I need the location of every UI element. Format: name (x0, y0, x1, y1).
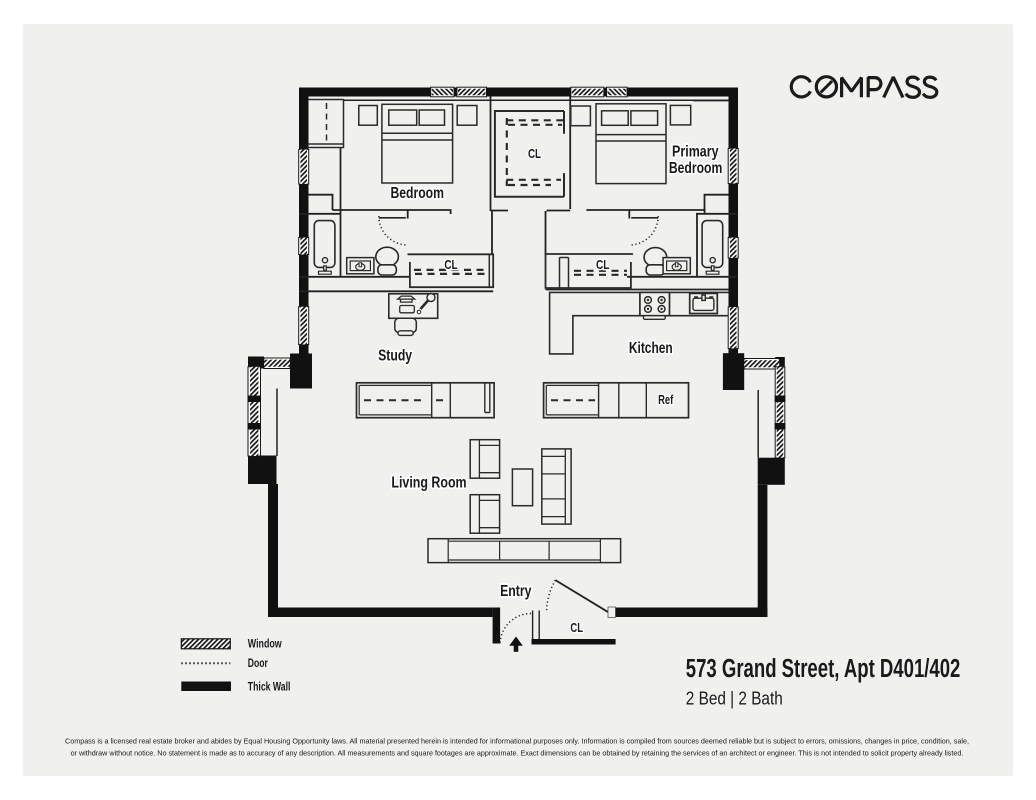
svg-text:Bedroom: Bedroom (669, 158, 722, 176)
svg-text:Ref: Ref (658, 394, 673, 408)
svg-text:CL: CL (528, 148, 541, 161)
svg-text:CL: CL (570, 622, 583, 636)
svg-text:Entry: Entry (500, 582, 532, 600)
svg-text:CL: CL (444, 259, 457, 272)
svg-text:Door: Door (248, 658, 268, 671)
svg-text:Thick Wall: Thick Wall (248, 682, 291, 695)
svg-text:2 Bed | 2 Bath: 2 Bed | 2 Bath (686, 688, 783, 709)
svg-text:573 Grand Street, Apt D401/402: 573 Grand Street, Apt D401/402 (686, 654, 961, 683)
svg-text:Kitchen: Kitchen (629, 340, 673, 357)
svg-text:Primary: Primary (672, 142, 719, 160)
svg-text:Study: Study (378, 346, 412, 364)
svg-text:Compass is a licensed real est: Compass is a licensed real estate broker… (65, 737, 969, 746)
svg-text:Window: Window (248, 637, 283, 651)
svg-text:Living Room: Living Room (391, 473, 466, 491)
svg-text:Bedroom: Bedroom (390, 184, 443, 202)
svg-text:or withdraw without notice. No: or withdraw without notice. No statement… (71, 749, 964, 758)
svg-text:CL: CL (596, 259, 609, 272)
